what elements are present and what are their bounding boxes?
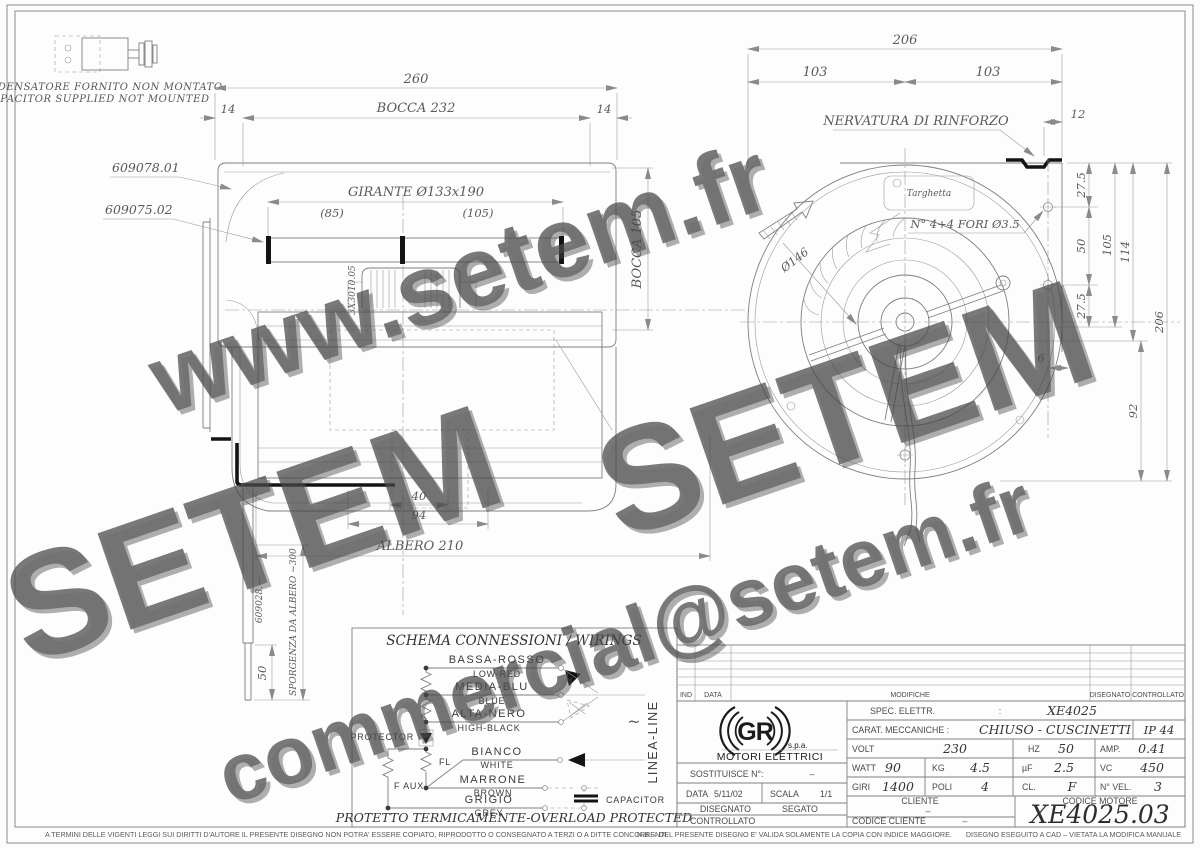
dim-bocca-232: BOCCA 232 (376, 101, 456, 116)
dim-50-holes: 50 (1074, 239, 1088, 254)
logo-spa-text: s.p.a. (788, 741, 808, 750)
rev-ind-header: IND (680, 692, 692, 699)
fl-label: FL (439, 757, 451, 767)
giri-value: 1400 (882, 779, 914, 794)
part-label-609075: 609075.02 (105, 202, 173, 217)
poli-label: POLI (932, 782, 952, 792)
drawing-sheet: CONDENSATORE FORNITO NON MONTATO CAPACIT… (0, 0, 1200, 848)
part-label-609078: 609078.01 (112, 160, 180, 175)
spec-elettr-value: XE4025 (1046, 703, 1097, 718)
dim-overall-260: 260 (403, 72, 429, 87)
disclaimer-strip: A TERMINI DELLE VIGENTI LEGGI SUI DIRITT… (45, 830, 1181, 839)
sostituisce-value: – (810, 769, 815, 779)
technical-drawing: CONDENSATORE FORNITO NON MONTATO CAPACIT… (0, 0, 1200, 848)
wire-bianco-en: WHITE (481, 760, 514, 770)
carat-value: CHIUSO - CUSCINETTI (979, 722, 1132, 737)
rev-modifiche-header: MODIFICHE (890, 692, 930, 699)
watt-label: WATT (852, 763, 877, 773)
nervatura-label: NERVATURA DI RINFORZO (822, 114, 1009, 129)
wire-bianco-label: BIANCO (471, 746, 522, 758)
disclaimer-mid: N.B. – DEL PRESENTE DISEGNO E' VALIDA SO… (637, 830, 952, 839)
volt-value: 230 (942, 741, 967, 756)
fori-label: N° 4+4 FORI Ø3.5 (909, 217, 1019, 231)
disegnato-label: DISEGNATO (700, 804, 751, 814)
title-block: IND DATA MODIFICHE DISEGNATO CONTROLLATO… (677, 645, 1185, 829)
tilde-symbol: ~ (627, 712, 640, 731)
nvel-value: 3 (1154, 779, 1162, 794)
dim-206-v: 206 (1152, 311, 1166, 334)
sostituisce-label: SOSTITUISCE N°: (690, 769, 763, 779)
watt-value: 90 (885, 760, 901, 775)
uf-value: 2.5 (1053, 760, 1074, 775)
nvel-label: N° VEL. (1100, 782, 1131, 792)
dim-14-left: 14 (221, 102, 236, 116)
cliente-value: – (926, 806, 931, 816)
dim-27-5-top: 27.5 (1074, 172, 1088, 199)
vc-label: VC (1100, 763, 1113, 773)
hz-label: HZ (1028, 744, 1040, 754)
wiring-footer: PROTETTO TERMICAMENTE-OVERLOAD PROTECTED (335, 810, 692, 825)
dim-114: 114 (1118, 241, 1132, 263)
capacitor-label: CAPACITOR (606, 795, 665, 805)
dim-50-shaft: 50 (255, 666, 269, 681)
dim-14-right: 14 (597, 102, 612, 116)
cl-label: CL. (1022, 782, 1036, 792)
dim-206-top: 206 (892, 33, 918, 48)
cliente-label: CLIENTE (901, 796, 938, 806)
rev-controllato-header: CONTROLLATO (1132, 692, 1184, 699)
targhetta-label: Targhetta (907, 189, 951, 199)
gr-motori-elettrici-logo: GR s.p.a. MOTORI ELETTRICI (717, 707, 838, 763)
rev-disegnato-header: DISEGNATO (1090, 692, 1131, 699)
codice-cliente-value: – (963, 816, 968, 826)
wire-grigio-label: GRIGIO (465, 794, 514, 806)
scala-value: 1/1 (820, 789, 832, 799)
dim-girante: GIRANTE Ø133x190 (348, 185, 484, 200)
volt-label: VOLT (852, 744, 875, 754)
dim-12: 12 (1071, 107, 1086, 121)
dia-146-label: Ø146 (777, 245, 811, 276)
carat-label: CARAT. MECCANICHE : (852, 725, 949, 735)
kg-value: 4.5 (969, 760, 990, 775)
rev-data-header: DATA (704, 692, 722, 699)
fan-blades (804, 218, 905, 315)
capacitor-note-en: CAPACITOR SUPPLIED NOT MOUNTED (0, 94, 210, 105)
amp-label: AMP. (1100, 744, 1120, 754)
dim-103-left: 103 (803, 65, 828, 80)
disegnato-value: SEGATO (782, 804, 818, 814)
hz-value: 50 (1058, 741, 1074, 756)
wire-marrone-label: MARRONE (460, 774, 527, 786)
logo-name-text: MOTORI ELETTRICI (717, 751, 823, 763)
linea-line-label: LINEA-LINE (646, 700, 660, 783)
scala-label: SCALA (770, 789, 799, 799)
giri-label: GIRI (852, 782, 870, 792)
spec-colon: : (999, 706, 1001, 716)
dim-105-v: 105 (1100, 234, 1114, 256)
spec-elettr-label: SPEC. ELETTR. (870, 706, 935, 716)
capacitor-detail: CONDENSATORE FORNITO NON MONTATO CAPACIT… (0, 36, 223, 105)
poli-value: 4 (980, 779, 989, 794)
uf-label: µF (1022, 763, 1033, 773)
dim-85: (85) (320, 206, 344, 220)
bianco-arrow (568, 753, 585, 767)
cl-value: F (1067, 779, 1078, 794)
data-value: 5/11/02 (714, 789, 743, 799)
disclaimer-right: DISEGNO ESEGUITO A CAD – VIETATA LA MODI… (966, 830, 1181, 839)
logo-gr-text: GR (737, 718, 773, 746)
ip-rating: IP 44 (1143, 723, 1175, 737)
codice-cliente-label: CODICE CLIENTE (852, 816, 926, 826)
dim-103-right: 103 (976, 65, 1001, 80)
dim-92: 92 (1126, 404, 1140, 419)
vc-value: 450 (1139, 760, 1164, 775)
disclaimer-left: A TERMINI DELLE VIGENTI LEGGI SUI DIRITT… (45, 830, 669, 839)
controllato-label: CONTROLLATO (690, 816, 755, 826)
amp-value: 0.41 (1138, 741, 1166, 756)
faux-label: F AUX (394, 781, 424, 791)
capacitor-note-it: CONDENSATORE FORNITO NON MONTATO (0, 82, 223, 93)
data-label: DATA (686, 789, 708, 799)
codice-motore-value: XE4025.03 (1028, 800, 1169, 829)
kg-label: KG (932, 763, 945, 773)
